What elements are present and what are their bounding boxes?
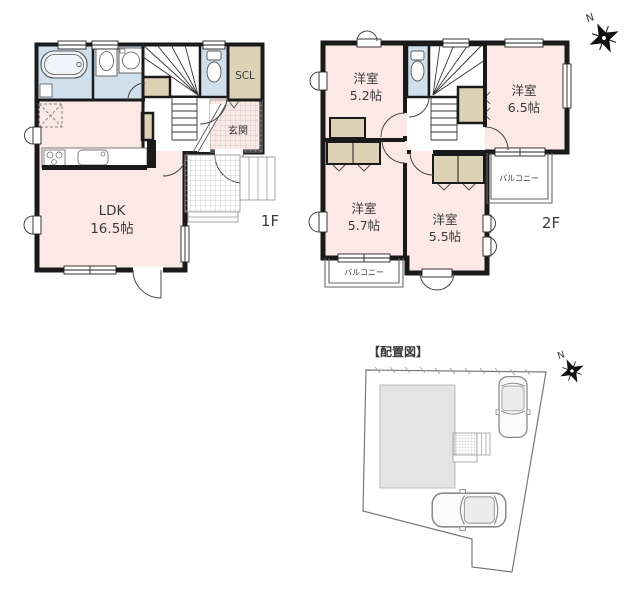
floor-1f-plan: SCL 玄関 bbox=[24, 41, 279, 298]
room-nw-area: 5.2帖 bbox=[350, 88, 382, 103]
floorplan-drawing: SCL 玄関 bbox=[0, 0, 631, 595]
site-plan-title: 【配置図】 bbox=[368, 344, 428, 359]
compass-icon-site: N bbox=[555, 349, 589, 388]
balcony-south-label: バルコニー bbox=[344, 268, 384, 277]
ldk-label: LDK bbox=[99, 203, 127, 219]
compass-icon-2f: N bbox=[583, 11, 626, 59]
room-nw-label: 洋室 bbox=[353, 71, 378, 86]
compass-n-label-2f: N bbox=[584, 11, 595, 25]
washbasin-icon bbox=[96, 48, 117, 76]
ldk-area-label: 16.5帖 bbox=[90, 221, 134, 237]
car-icon-south bbox=[432, 490, 506, 531]
closet-hall-1f bbox=[143, 77, 170, 97]
room-ne-label: 洋室 bbox=[511, 83, 536, 98]
toilet-icon bbox=[207, 51, 221, 82]
closet-ne bbox=[458, 87, 485, 123]
car-icon-north bbox=[496, 377, 530, 438]
toilet-icon-2f bbox=[411, 51, 424, 81]
scl-label: SCL bbox=[235, 70, 255, 82]
closet-nw bbox=[330, 118, 365, 138]
room-sw-label: 洋室 bbox=[351, 201, 376, 216]
site-building-footprint bbox=[380, 385, 455, 488]
balcony-east-label: バルコニー bbox=[499, 174, 539, 183]
room-sw-area: 5.7帖 bbox=[348, 218, 380, 233]
room-ne-area: 6.5帖 bbox=[508, 100, 540, 115]
site-plan: 【配置図】 N bbox=[363, 344, 589, 572]
kitchen-sink-icon bbox=[78, 150, 108, 165]
floor-label-2f: 2F bbox=[542, 214, 560, 232]
floor-label-1f: 1F bbox=[261, 212, 279, 230]
room-s-area: 5.5帖 bbox=[429, 229, 461, 244]
room-s-label: 洋室 bbox=[432, 212, 457, 227]
floor-2f-plan: バルコニー バルコニー 洋室 5.2帖 洋室 6.5帖 洋室 5.7帖 洋室 5… bbox=[309, 11, 625, 290]
washing-machine-icon bbox=[119, 48, 143, 73]
compass-n-label-site: N bbox=[556, 349, 566, 362]
genkan-label: 玄関 bbox=[228, 124, 248, 137]
stove-icon bbox=[44, 150, 65, 166]
floorplan-page: SCL 玄関 bbox=[0, 0, 631, 595]
